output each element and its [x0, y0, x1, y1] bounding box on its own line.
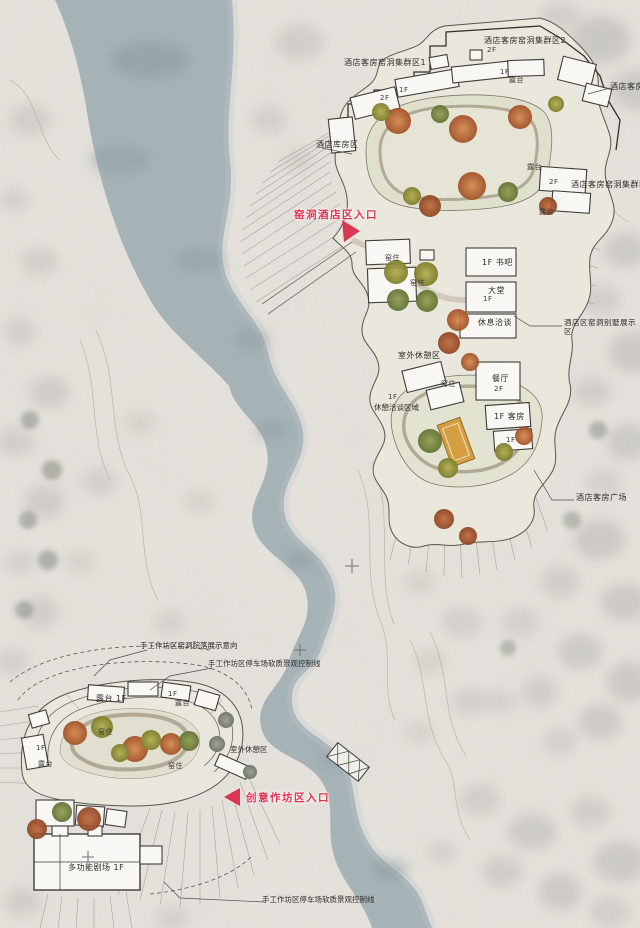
label-terrace: 露台	[527, 163, 542, 172]
label-floor-2f: 2F	[380, 94, 389, 103]
label-terrace-1f: 露台 1F	[96, 694, 127, 703]
label-yaozhu: 窑住	[410, 279, 425, 288]
label-hotel-cluster-2: 酒店客房窑洞集群区2	[484, 36, 566, 45]
label-guestroom: 1F 客房	[494, 412, 525, 421]
label-restaurant: 餐厅	[492, 374, 509, 383]
label-terrace: 露台	[539, 208, 554, 217]
label-terrace: 露台	[175, 699, 190, 708]
label-terrace: 露台	[38, 760, 53, 769]
label-hotel-partial: 酒店客房	[610, 82, 640, 91]
label-workshop-control-line-bottom: 手工作坊区停车场软质景观控制线	[262, 895, 375, 904]
label-floor-1f: 1F	[36, 744, 45, 753]
label-yaozhu: 窑住	[98, 728, 113, 737]
label-villa-display: 酒店区窑洞别墅展示区	[564, 318, 638, 336]
label-floor-2f: 2F	[494, 385, 503, 394]
label-terrace: 露台	[509, 76, 524, 85]
label-floor-2f: 2F	[549, 178, 558, 187]
label-lobby: 大堂	[488, 286, 505, 295]
label-rest-talk: 休憩洽谈区域	[374, 403, 419, 412]
label-floor-1f: 1F	[388, 393, 397, 402]
label-floor-1f: 1F	[506, 436, 515, 445]
label-workshop-entrance: 创意作坊区入口	[246, 790, 330, 805]
label-hotel-plaza: 酒店客房广场	[576, 493, 627, 502]
label-floor-1f: 1F	[399, 86, 408, 95]
label-hotel-cluster-3: 酒店客房窑洞集群区3	[571, 180, 640, 189]
label-theater: 多功能剧场 1F	[68, 863, 124, 872]
label-outdoor-rest-hotel: 室外休憩区	[398, 351, 441, 360]
label-floor-2f: 2F	[487, 46, 496, 55]
label-yaozhu: 窑住	[441, 380, 456, 389]
label-floor-1f: 1F	[168, 690, 177, 699]
label-floor-1f: 1F	[483, 295, 492, 304]
label-lounge: 休息洽谈	[478, 318, 512, 327]
label-book-bar: 1F 书吧	[482, 258, 513, 267]
label-outdoor-rest-workshop: 室外休憩区	[230, 745, 268, 754]
label-yaozhu: 窑住	[168, 762, 183, 771]
label-workshop-control-line-top: 手工作坊区停车场软质景观控制线	[208, 659, 321, 668]
label-hotel-cluster-1: 酒店客房窑洞集群区1	[344, 58, 426, 67]
label-workshop-display-line: 手工作坊区窑洞院落展示意向	[140, 641, 238, 650]
label-hotel-storage: 酒店库房区	[316, 140, 359, 149]
site-plan: 酒店客房窑洞集群区2 酒店客房窑洞集群区1 2F 1F 露台 2F 1F 酒店库…	[0, 0, 640, 928]
label-yaozhu: 窑住	[385, 254, 400, 263]
label-hotel-entrance: 窑洞酒店区入口	[294, 207, 378, 222]
